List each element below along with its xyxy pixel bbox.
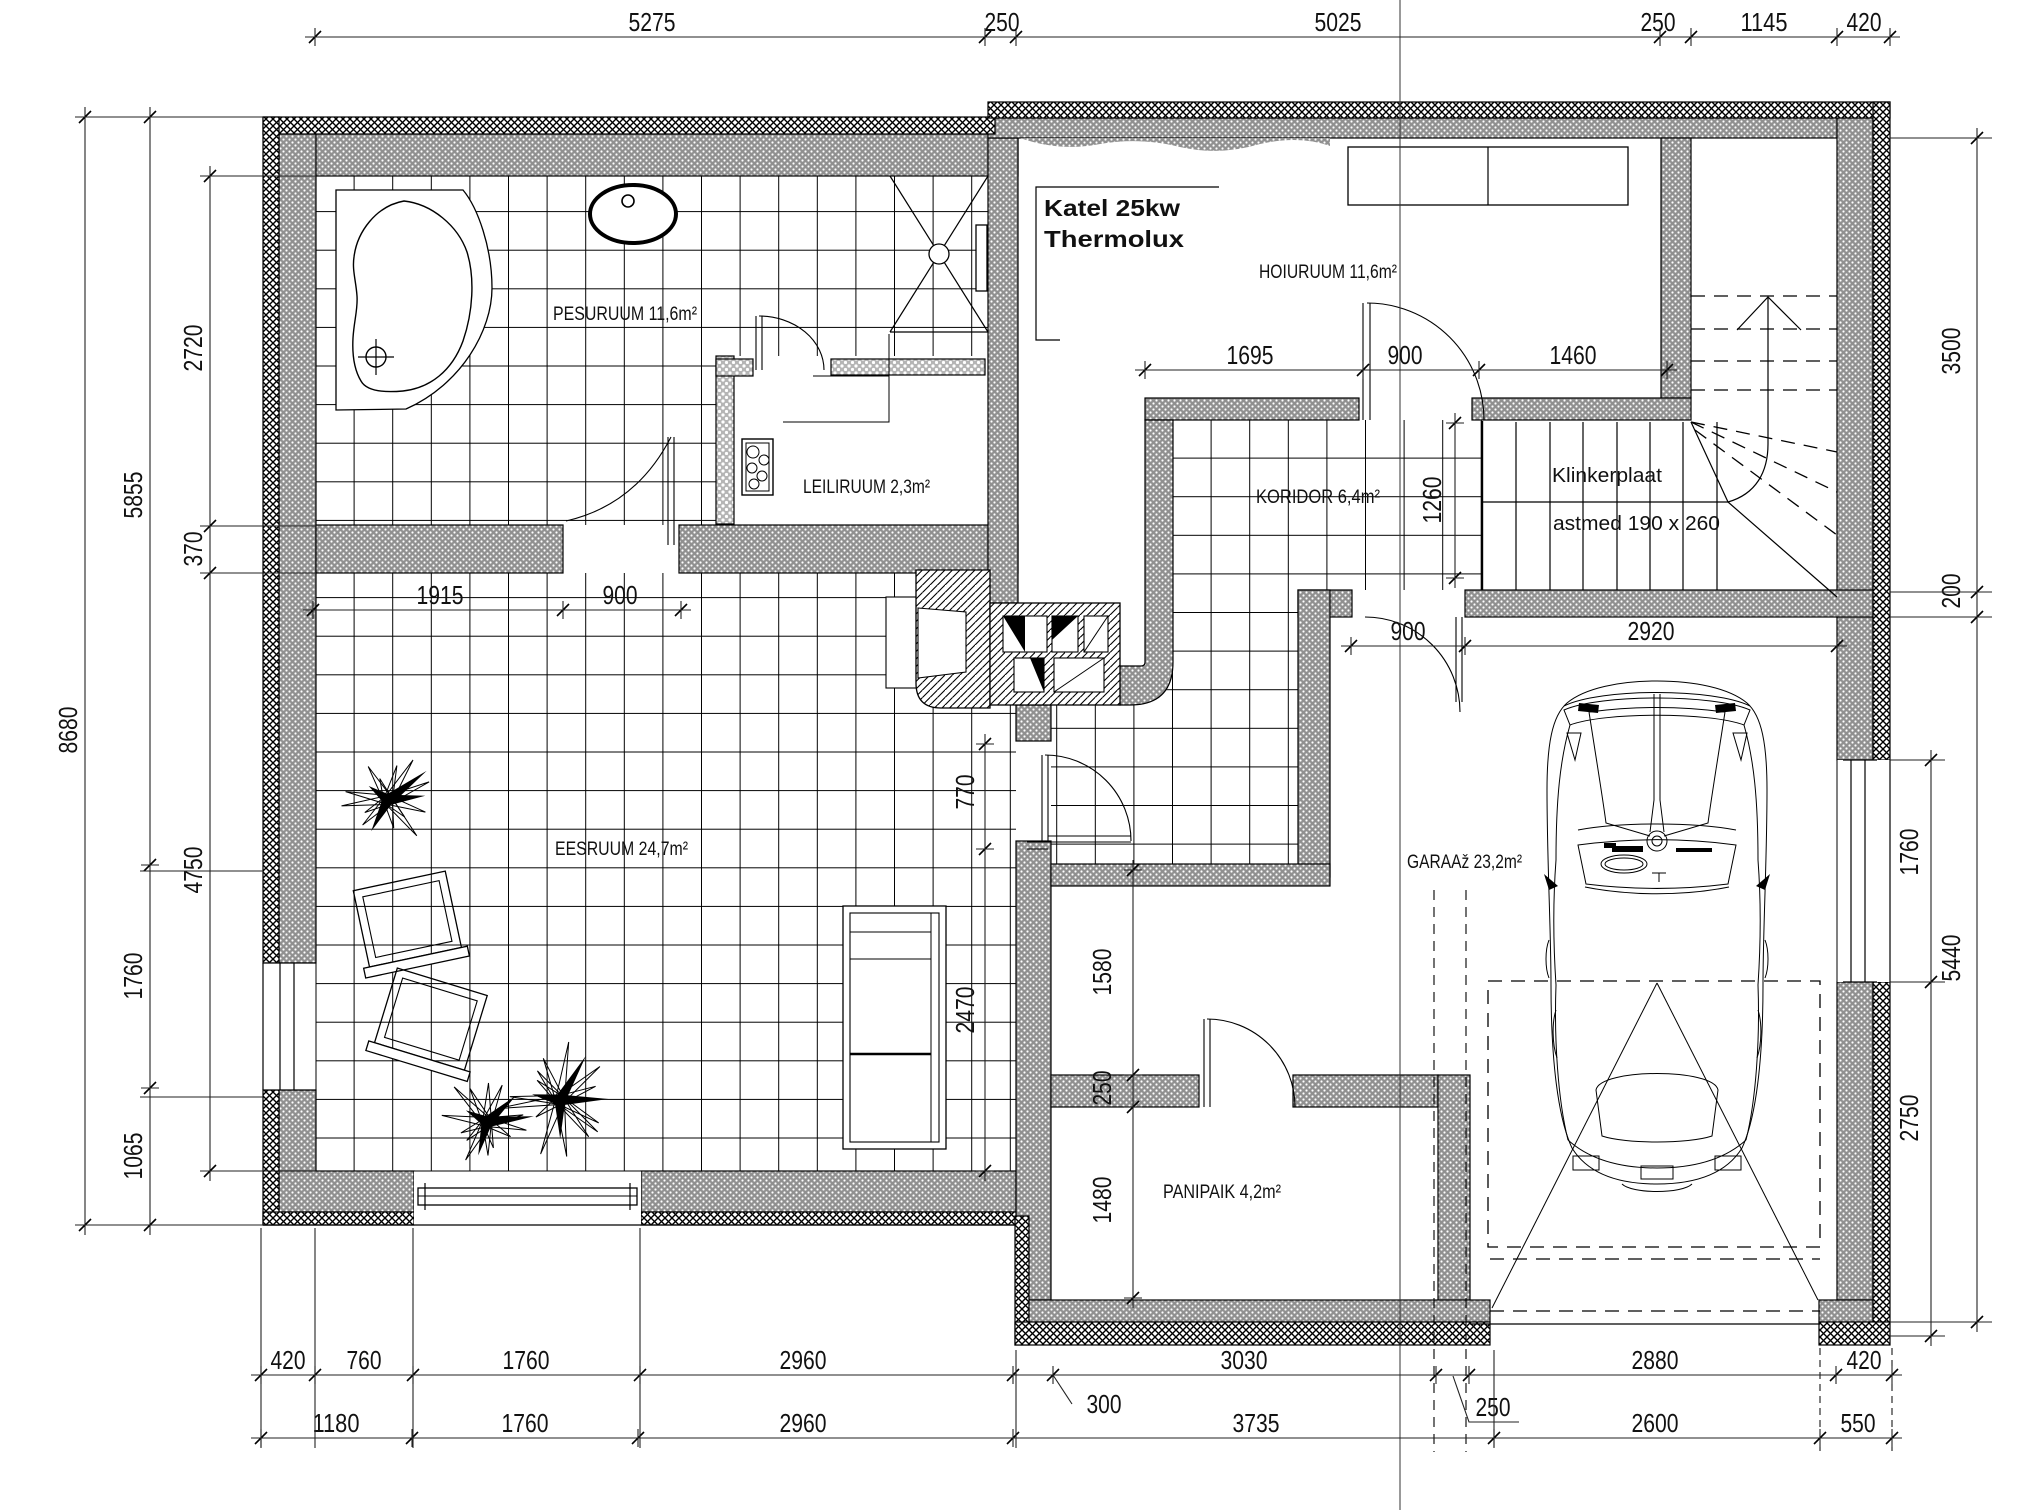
- svg-text:300: 300: [1087, 1389, 1122, 1419]
- svg-text:1760: 1760: [502, 1408, 549, 1438]
- svg-text:3735: 3735: [1233, 1408, 1280, 1438]
- svg-text:900: 900: [1391, 616, 1426, 646]
- svg-text:8680: 8680: [53, 707, 83, 754]
- svg-text:900: 900: [1388, 340, 1423, 370]
- svg-text:Thermolux: Thermolux: [1044, 226, 1184, 252]
- svg-text:420: 420: [271, 1345, 306, 1375]
- svg-text:5855: 5855: [118, 472, 148, 519]
- svg-text:HOIURUUM 11,6m²: HOIURUUM 11,6m²: [1259, 262, 1397, 283]
- svg-text:2960: 2960: [780, 1345, 827, 1375]
- svg-text:1460: 1460: [1550, 340, 1597, 370]
- svg-text:250: 250: [1476, 1392, 1511, 1422]
- svg-text:1760: 1760: [503, 1345, 550, 1375]
- svg-text:1145: 1145: [1741, 7, 1788, 37]
- svg-text:250: 250: [1641, 7, 1676, 37]
- svg-text:550: 550: [1841, 1408, 1876, 1438]
- svg-text:PANIPAIK 4,2m²: PANIPAIK 4,2m²: [1163, 1182, 1281, 1203]
- svg-text:770: 770: [950, 775, 980, 810]
- svg-text:EESRUUM 24,7m²: EESRUUM 24,7m²: [555, 839, 688, 860]
- svg-text:1260: 1260: [1417, 477, 1447, 524]
- svg-text:420: 420: [1847, 7, 1882, 37]
- svg-text:Katel 25kw: Katel 25kw: [1044, 195, 1180, 221]
- svg-text:1760: 1760: [1894, 829, 1924, 876]
- svg-text:2920: 2920: [1628, 616, 1675, 646]
- svg-text:1580: 1580: [1087, 949, 1117, 996]
- svg-text:2960: 2960: [780, 1408, 827, 1438]
- svg-text:900: 900: [603, 580, 638, 610]
- svg-text:200: 200: [1936, 574, 1966, 609]
- svg-text:420: 420: [1847, 1345, 1882, 1375]
- svg-text:KORIDOR 6,4m²: KORIDOR 6,4m²: [1256, 487, 1380, 508]
- svg-text:1180: 1180: [313, 1408, 360, 1438]
- svg-text:3030: 3030: [1221, 1345, 1268, 1375]
- svg-text:2470: 2470: [950, 987, 980, 1034]
- svg-text:astmed 190 x 260: astmed 190 x 260: [1553, 513, 1720, 535]
- svg-text:1065: 1065: [118, 1133, 148, 1180]
- svg-text:5440: 5440: [1936, 935, 1966, 982]
- svg-text:GARAAž 23,2m²: GARAAž 23,2m²: [1407, 852, 1522, 873]
- svg-text:2880: 2880: [1632, 1345, 1679, 1375]
- svg-text:4750: 4750: [178, 847, 208, 894]
- svg-text:5275: 5275: [629, 7, 676, 37]
- svg-text:5025: 5025: [1315, 7, 1362, 37]
- svg-text:2600: 2600: [1632, 1408, 1679, 1438]
- svg-text:PESURUUM 11,6m²: PESURUUM 11,6m²: [553, 304, 697, 325]
- svg-text:370: 370: [178, 532, 208, 567]
- svg-text:Klinkerplaat: Klinkerplaat: [1552, 465, 1662, 487]
- svg-text:760: 760: [347, 1345, 382, 1375]
- svg-text:250: 250: [1087, 1071, 1117, 1106]
- svg-text:2720: 2720: [178, 325, 208, 372]
- svg-text:2750: 2750: [1894, 1095, 1924, 1142]
- svg-text:1760: 1760: [118, 953, 148, 1000]
- svg-text:1915: 1915: [417, 580, 464, 610]
- svg-text:3500: 3500: [1936, 328, 1966, 375]
- svg-text:1480: 1480: [1087, 1177, 1117, 1224]
- svg-text:LEILIRUUM 2,3m²: LEILIRUUM 2,3m²: [803, 477, 930, 498]
- svg-text:1695: 1695: [1227, 340, 1274, 370]
- svg-text:250: 250: [985, 7, 1020, 37]
